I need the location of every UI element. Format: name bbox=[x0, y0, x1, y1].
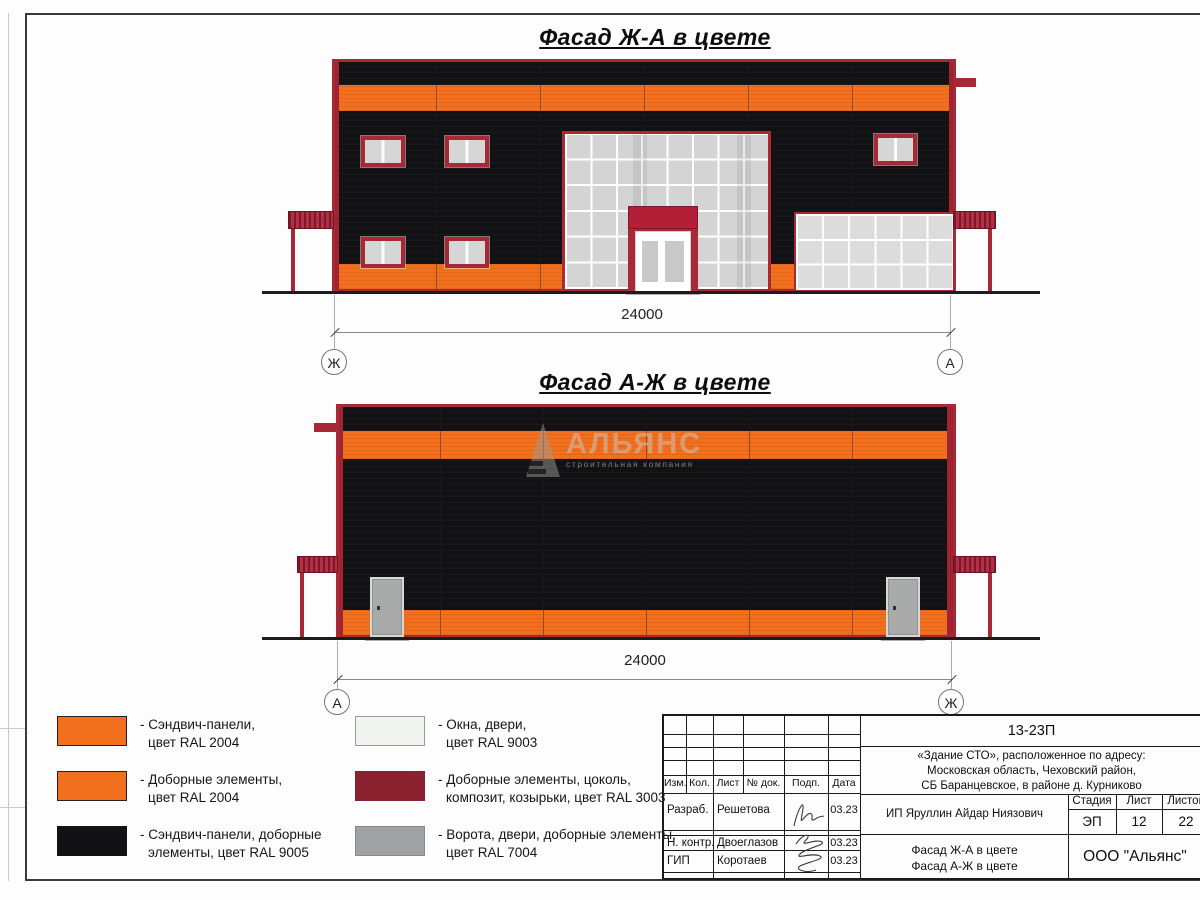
legend-item: - Доборные элементы, цоколь, композит, к… bbox=[438, 771, 666, 807]
company-watermark: АЛЬЯНС строительная компания bbox=[526, 419, 716, 479]
tb-col-doc: № док. bbox=[743, 777, 784, 789]
signer-role: Разраб. bbox=[667, 804, 713, 816]
address-line: «Здание СТО», расположенное по адресу: bbox=[861, 749, 1200, 764]
side-canopy bbox=[288, 211, 334, 229]
axis-marker: А bbox=[324, 689, 350, 715]
doc-code: 13-23П bbox=[861, 716, 1200, 746]
entrance-canopy bbox=[628, 206, 698, 229]
service-door bbox=[886, 577, 920, 637]
signer-date: 03.23 bbox=[828, 837, 860, 849]
axis-marker: А bbox=[937, 349, 963, 375]
legend-label: цвет RAL 9003 bbox=[438, 734, 537, 752]
window bbox=[361, 237, 405, 268]
sheet-name-line: Фасад Ж-А в цвете bbox=[861, 842, 1068, 858]
tb-col-list: Лист bbox=[713, 777, 743, 789]
window bbox=[445, 136, 489, 167]
legend-swatch-ral9005 bbox=[57, 826, 127, 856]
axis-marker: Ж bbox=[321, 349, 347, 375]
legend-swatch-ral7004 bbox=[355, 826, 425, 856]
signer-role: Н. контр. bbox=[667, 837, 717, 849]
door-handle bbox=[893, 606, 896, 610]
panel-seam bbox=[436, 62, 437, 289]
legend-label: цвет RAL 2004 bbox=[140, 734, 255, 752]
project-address: «Здание СТО», расположенное по адресу: М… bbox=[861, 749, 1200, 794]
tb-col-kol: Кол. bbox=[686, 777, 713, 789]
legend-swatch-ral2004-panels bbox=[57, 716, 127, 746]
drawing-sheet: Фасад Ж-А в цвете 24000 bbox=[0, 0, 1200, 900]
signer-name: Решетова bbox=[717, 804, 783, 816]
address-line: Московская область, Чеховский район, bbox=[861, 764, 1200, 779]
canopy-post bbox=[988, 229, 992, 292]
window bbox=[874, 134, 917, 165]
signer-date: 03.23 bbox=[828, 804, 860, 816]
tb-col-podp: Подп. bbox=[784, 777, 828, 789]
legend-swatch-ral2004-trim bbox=[57, 771, 127, 801]
tb-hline bbox=[664, 850, 861, 851]
window bbox=[445, 237, 489, 268]
watermark-name: АЛЬЯНС bbox=[566, 429, 702, 459]
door-leaf bbox=[640, 239, 660, 284]
legend-swatch-ral3003 bbox=[355, 771, 425, 801]
legend-item: - Ворота, двери, доборные элементы, цвет… bbox=[438, 826, 676, 862]
sheet-margin-line bbox=[8, 13, 9, 881]
sheet-name: Фасад Ж-А в цвете Фасад А-Ж в цвете bbox=[861, 842, 1068, 874]
legend-label: элементы, цвет RAL 9005 bbox=[140, 844, 322, 862]
legend-label: - Доборные элементы, bbox=[140, 771, 282, 789]
sheet-number: 12 bbox=[1116, 809, 1162, 834]
stage-value: ЭП bbox=[1068, 809, 1116, 834]
window bbox=[361, 136, 405, 167]
margin-tick-2 bbox=[0, 807, 25, 808]
watermark-text: АЛЬЯНС строительная компания bbox=[566, 429, 702, 469]
legend-item: - Окна, двери, цвет RAL 9003 bbox=[438, 716, 537, 752]
stage-col-list: Лист bbox=[1116, 795, 1162, 807]
client-name: ИП Яруллин Айдар Ниязович bbox=[861, 795, 1068, 834]
panel-seam bbox=[440, 407, 441, 635]
legend-item: - Сэндвич-панели, цвет RAL 2004 bbox=[140, 716, 255, 752]
dimension-line bbox=[337, 679, 952, 680]
tb-col-izm: Изм. bbox=[664, 777, 686, 789]
signer-name: Двоеглазов bbox=[717, 837, 787, 849]
facade2-right-column bbox=[947, 407, 953, 635]
sheet-name-line: Фасад А-Ж в цвете bbox=[861, 858, 1068, 874]
facade1-left-column bbox=[335, 62, 339, 289]
glazing-shade bbox=[737, 134, 751, 289]
panel-seam bbox=[540, 62, 541, 289]
canopy-post bbox=[988, 573, 992, 637]
signer-date: 03.23 bbox=[828, 855, 860, 867]
dimension-line bbox=[334, 332, 951, 333]
title-block: Изм. Кол. Лист № док. Подп. Дата Разраб.… bbox=[662, 714, 1200, 880]
door-leaf bbox=[663, 239, 686, 284]
facade1-ground-line bbox=[262, 291, 1040, 294]
canopy-post bbox=[291, 229, 295, 292]
legend-item: - Сэндвич-панели, доборные элементы, цве… bbox=[140, 826, 322, 862]
sheet-frame-left bbox=[25, 13, 27, 881]
canopy-post bbox=[300, 573, 304, 637]
legend-label: - Сэндвич-панели, доборные bbox=[140, 826, 322, 844]
tb-hline bbox=[664, 793, 861, 794]
legend-label: - Сэндвич-панели, bbox=[140, 716, 255, 734]
legend-swatch-ral9003 bbox=[355, 716, 425, 746]
panel-seam bbox=[749, 407, 750, 635]
legend-label: - Окна, двери, bbox=[438, 716, 537, 734]
signer-role: ГИП bbox=[667, 855, 717, 867]
legend-label: композит, козырьки, цвет RAL 3003 bbox=[438, 789, 666, 807]
address-line: СБ Баранцевское, в районе д. Курниково bbox=[861, 779, 1200, 794]
tb-hline bbox=[664, 734, 861, 735]
facade1-roof-flashing bbox=[953, 78, 976, 87]
tb-col-data: Дата bbox=[828, 777, 860, 789]
tb-hline bbox=[860, 746, 1200, 747]
signer-name: Коротаев bbox=[717, 855, 787, 867]
tb-hline bbox=[664, 872, 861, 873]
facade2-ground-line bbox=[262, 637, 1040, 640]
side-canopy bbox=[953, 211, 996, 229]
legend-label: - Ворота, двери, доборные элементы, bbox=[438, 826, 676, 844]
stage-col-stadia: Стадия bbox=[1068, 795, 1116, 807]
alliance-pyramid-logo bbox=[526, 421, 560, 477]
service-door bbox=[370, 577, 404, 637]
door-handle bbox=[377, 606, 380, 610]
entrance-door bbox=[635, 231, 691, 292]
sheet-frame-top bbox=[25, 13, 1200, 15]
legend-label: - Доборные элементы, цоколь, bbox=[438, 771, 666, 789]
facade1-low-glazing bbox=[794, 212, 955, 292]
tb-hline bbox=[664, 760, 861, 761]
tb-hline bbox=[664, 747, 861, 748]
tb-hline bbox=[664, 835, 861, 836]
legend-label: цвет RAL 2004 bbox=[140, 789, 282, 807]
facade1-dimension-label: 24000 bbox=[562, 306, 722, 323]
margin-tick-1 bbox=[0, 728, 25, 729]
facade2-title: Фасад А-Ж в цвете bbox=[395, 369, 915, 396]
signature bbox=[786, 830, 830, 876]
legend-item: - Доборные элементы, цвет RAL 2004 bbox=[140, 771, 282, 807]
watermark-tagline: строительная компания bbox=[566, 459, 702, 469]
panel-seam bbox=[852, 407, 853, 635]
sheets-total: 22 bbox=[1162, 809, 1200, 834]
signature bbox=[788, 798, 828, 830]
tb-hline bbox=[664, 830, 861, 831]
side-canopy bbox=[297, 556, 338, 573]
legend-label: цвет RAL 7004 bbox=[438, 844, 676, 862]
facade1-title: Фасад Ж-А в цвете bbox=[395, 24, 915, 51]
axis-marker: Ж bbox=[938, 689, 964, 715]
tb-hline bbox=[664, 775, 861, 776]
facade2-dimension-label: 24000 bbox=[565, 652, 725, 669]
facade2-roof-flashing bbox=[314, 423, 336, 432]
stage-col-listov: Листов bbox=[1162, 795, 1200, 807]
side-canopy bbox=[953, 556, 996, 573]
company-name: ООО "Альянс" bbox=[1068, 834, 1200, 880]
facade2-left-column bbox=[339, 407, 343, 635]
